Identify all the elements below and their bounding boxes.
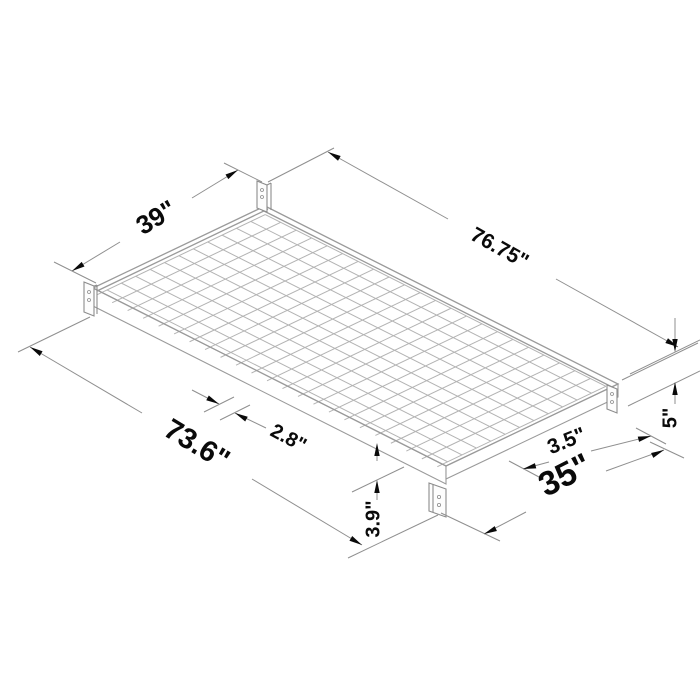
dimension-label-deck-length: 73.6" [158, 413, 235, 477]
dimension-label-foot-width: 35" [532, 446, 597, 504]
dimension-label-overall-length: 76.75" [467, 223, 533, 273]
dimension-5in [628, 318, 700, 406]
dimension-label-bracket-height: 5" [659, 408, 681, 429]
dimension-2-8in [192, 390, 266, 428]
frame-side-faces [93, 288, 618, 484]
product-dimension-diagram: 39" 76.75" 73.6" 2.8" 3.5" 35" 5" 3.9" [0, 0, 700, 700]
dimension-label-leg-height: 3.9" [362, 500, 384, 537]
dimension-label-head-width: 39" [131, 194, 182, 241]
dimension-76-75in [268, 148, 698, 380]
dimension-label-grid-spacing: 2.8" [267, 420, 310, 457]
dimension-lines [18, 148, 700, 558]
wire-deck-isometric-drawing: 39" 76.75" 73.6" 2.8" 3.5" 35" 5" 3.9" [0, 0, 700, 700]
